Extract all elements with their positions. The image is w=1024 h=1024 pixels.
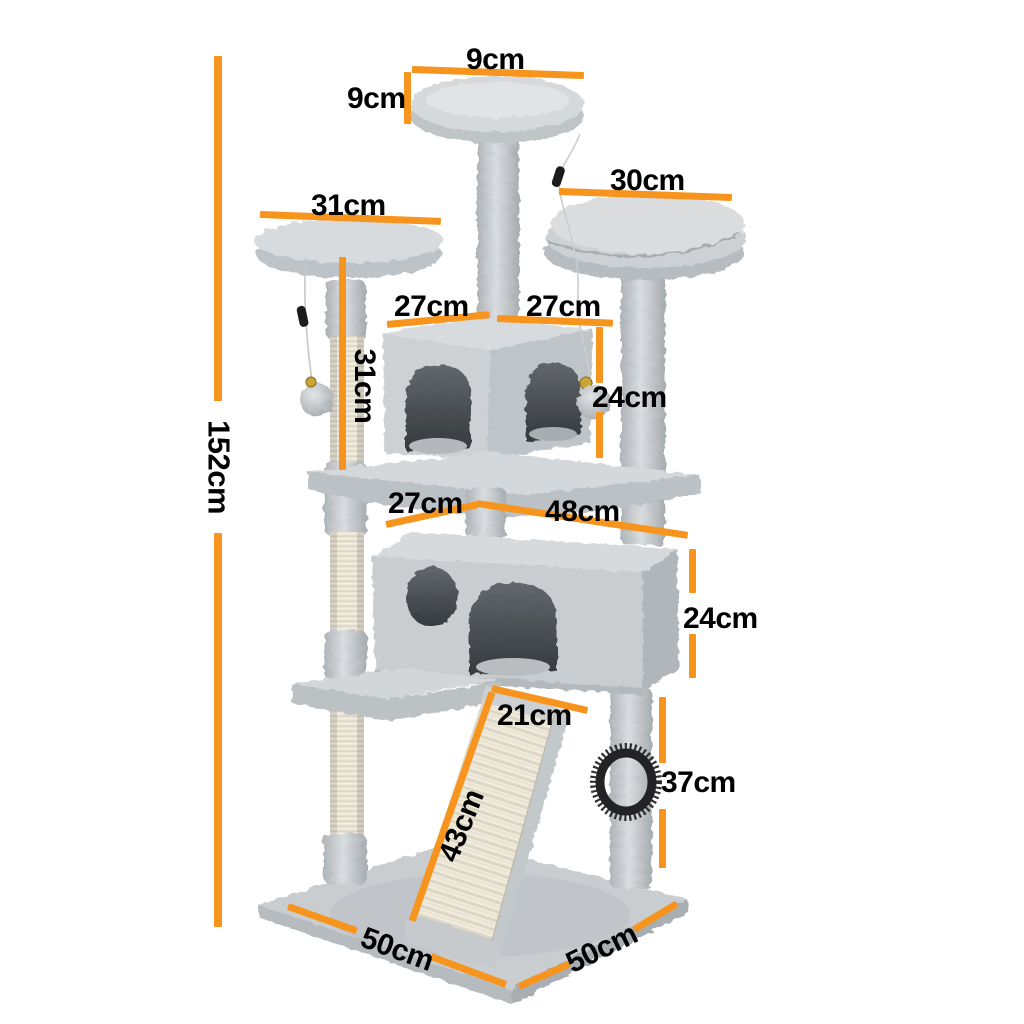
label-mid-platform-width: 48cm — [545, 497, 620, 527]
dim-line-lower-condo-height-b — [689, 634, 696, 678]
label-ramp-width: 21cm — [497, 701, 572, 731]
dim-line-top-condo-height-b — [596, 412, 603, 458]
label-top-condo-right-width: 27cm — [526, 292, 601, 322]
rear-post — [595, 688, 657, 888]
label-top-condo-left-width: 27cm — [394, 292, 469, 322]
label-rear-post-height: 37cm — [661, 768, 736, 798]
dim-line-left-post — [339, 257, 346, 470]
label-top-platform-thickness: 9cm — [347, 84, 406, 114]
right-platform — [544, 194, 746, 280]
dim-line-lower-condo-height-a — [689, 549, 696, 593]
dim-line-total-height-a — [214, 56, 222, 401]
connector-post — [466, 488, 506, 538]
label-mid-platform-depth: 27cm — [388, 489, 463, 519]
top-condo — [383, 317, 593, 459]
dim-line-top-condo-height-a — [596, 327, 603, 383]
label-left-platform-width: 31cm — [311, 191, 386, 221]
cat-tree-dimension-diagram: 9cm 9cm 30cm 31cm 31cm 27cm 27cm 24cm 27… — [0, 0, 1024, 1024]
left-platform — [254, 219, 444, 278]
label-total-height: 152cm — [204, 420, 235, 514]
dim-line-rear-post-a — [659, 697, 666, 763]
dim-line-total-height-b — [214, 533, 222, 927]
top-platform — [410, 76, 584, 143]
label-right-platform-width: 30cm — [610, 166, 685, 196]
label-top-platform-width: 9cm — [466, 45, 525, 75]
label-lower-condo-height: 24cm — [683, 604, 758, 634]
label-top-condo-height: 24cm — [592, 383, 667, 413]
dim-line-rear-post-b — [659, 809, 666, 868]
label-left-post-height: 31cm — [349, 349, 379, 424]
center-post — [477, 128, 519, 330]
